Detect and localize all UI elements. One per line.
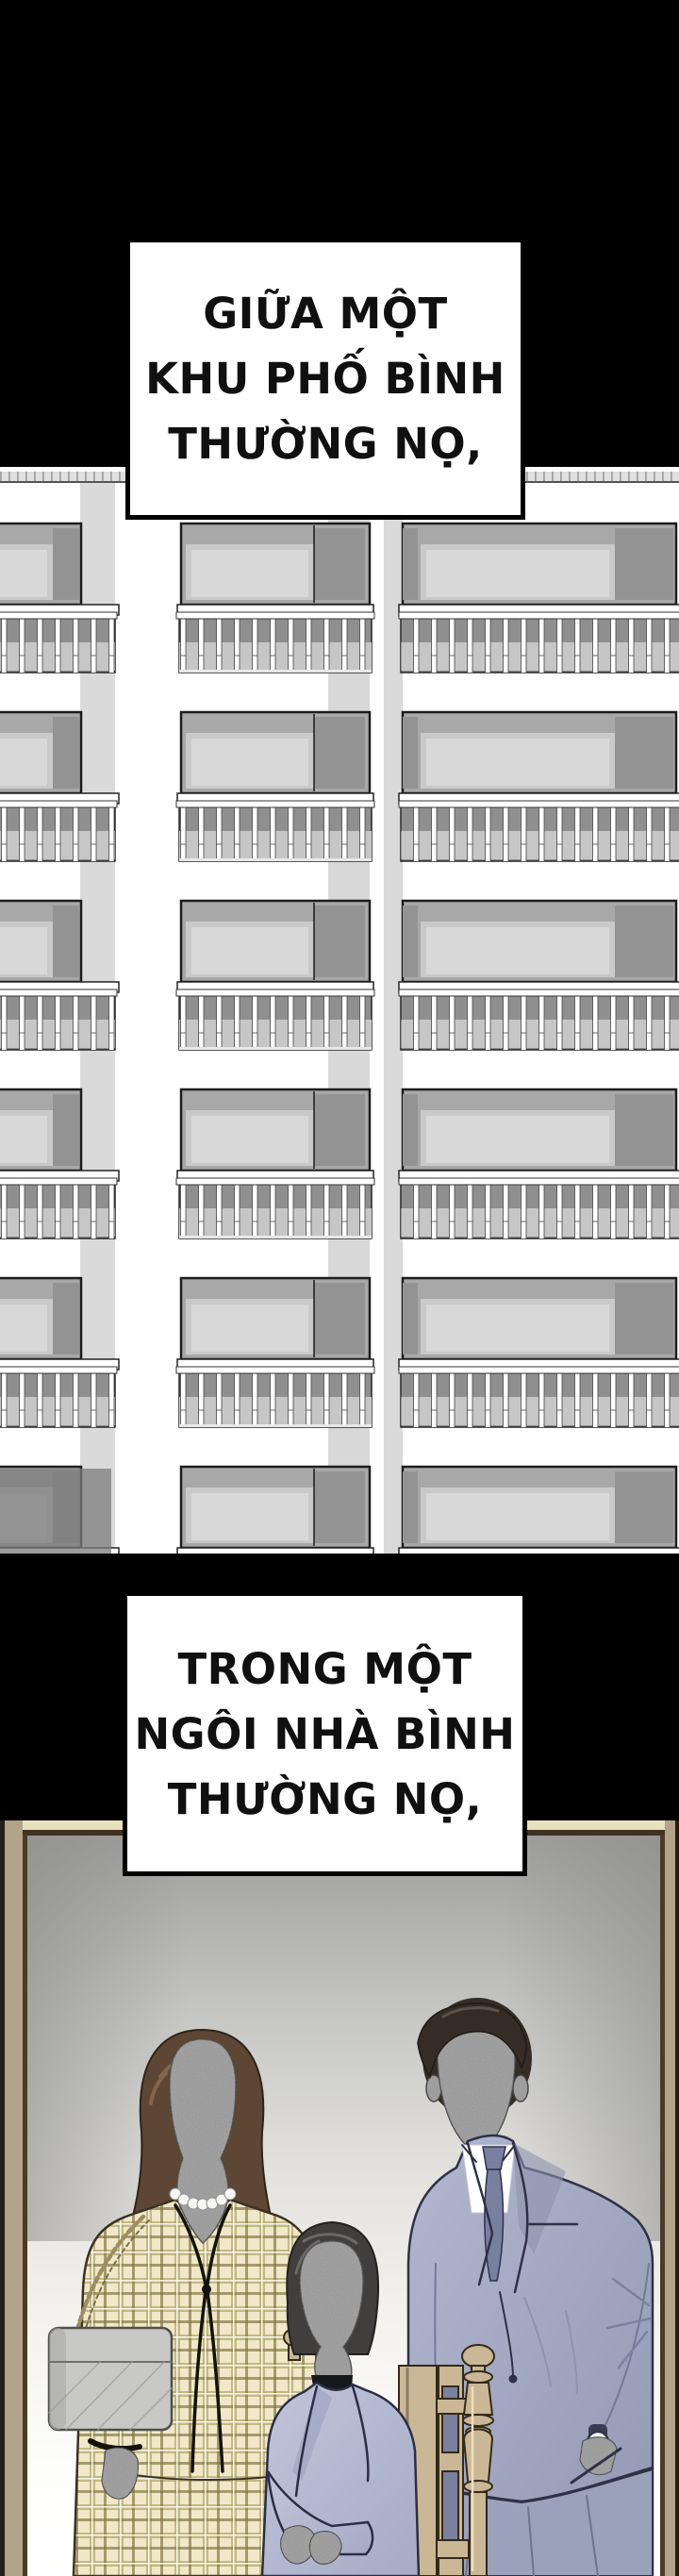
family-portrait-illustration — [0, 1820, 679, 2576]
caption-line: TRONG MỘT — [177, 1648, 472, 1690]
apartment-building-illustration — [0, 467, 679, 1554]
caption-box-street: GIỮA MỘT KHU PHỐ BÌNH THƯỜNG NỌ, — [125, 238, 525, 520]
jacket-button — [202, 2285, 211, 2294]
caption-line: THƯỜNG NỌ, — [168, 1778, 483, 1820]
caption-line: THƯỜNG NỌ, — [168, 423, 483, 465]
comic-page: GIỮA MỘT KHU PHỐ BÌNH THƯỜNG NỌ, — [0, 0, 679, 2576]
caption-line: KHU PHỐ BÌNH — [145, 357, 505, 400]
quilted-handbag — [49, 2328, 172, 2430]
caption-line: GIỮA MỘT — [203, 292, 448, 335]
caption-line: NGÔI NHÀ BÌNH — [135, 1713, 516, 1755]
caption-box-house: TRONG MỘT NGÔI NHÀ BÌNH THƯỜNG NỌ, — [123, 1591, 527, 1876]
